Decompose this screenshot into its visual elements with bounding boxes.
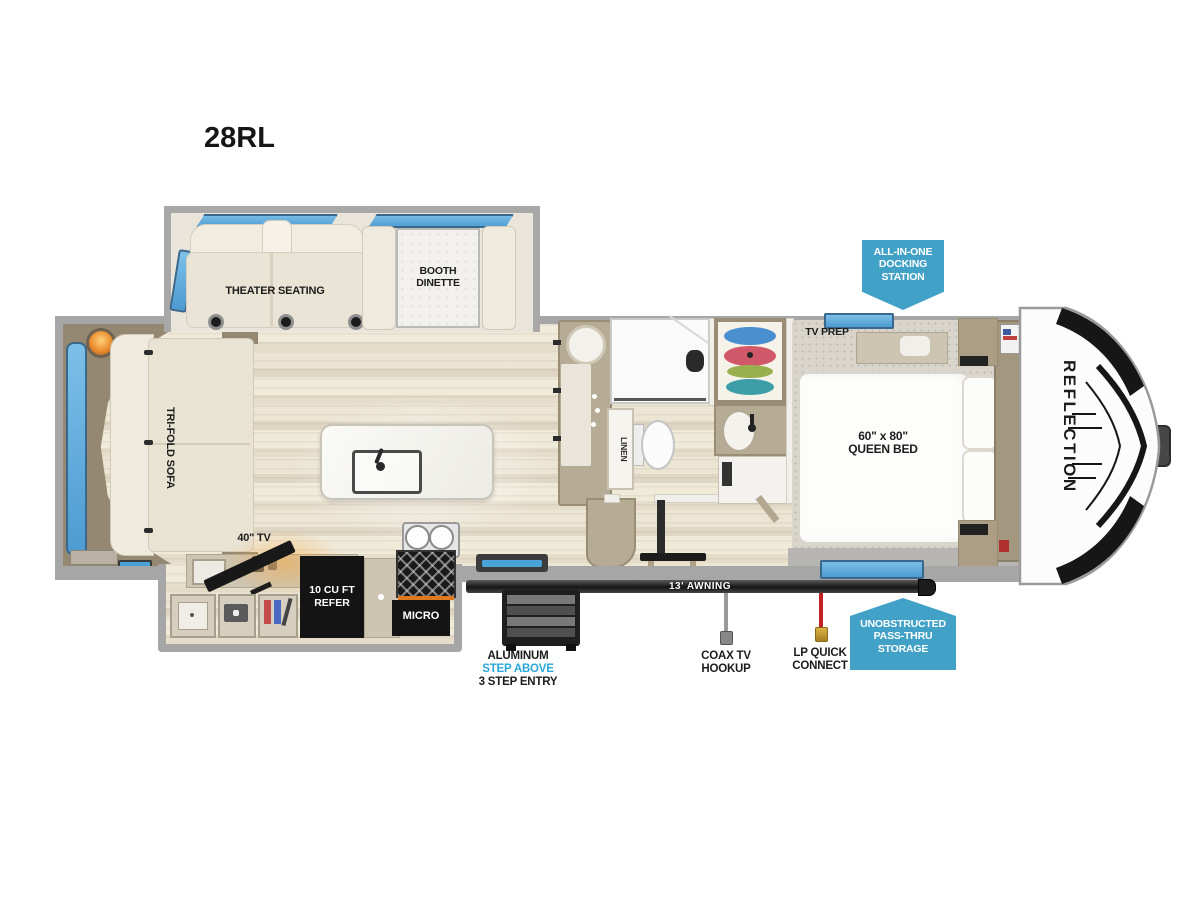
page-title: 28RL [204, 122, 275, 155]
shower-fixture-icon [686, 350, 704, 372]
bath-door [657, 500, 665, 556]
galley-handle [553, 388, 561, 393]
entry-steps-label: ALUMINUM STEP ABOVE 3 STEP ENTRY [466, 650, 570, 690]
bedding-graphic-blue [1003, 329, 1011, 335]
water-heater-blue [274, 600, 281, 624]
passthru-line3: STORAGE [850, 643, 956, 655]
theater-seating-label: THEATER SEATING [200, 285, 350, 297]
lp-hose [819, 593, 823, 629]
docking-line2: DOCKING [862, 258, 944, 270]
step-tread [507, 595, 575, 604]
dinette-line1: BOOTH [398, 266, 478, 278]
docking-line3: STATION [862, 271, 944, 283]
refer-label-line2: REFER [300, 597, 364, 610]
coax-label: COAX TV HOOKUP [688, 650, 764, 676]
booth-dinette-label: BOOTH DINETTE [398, 266, 478, 290]
vanity-faucet-base [748, 424, 756, 432]
coax-cable [724, 593, 728, 633]
step-tread [507, 617, 575, 626]
nightstand-item [960, 356, 988, 366]
front-cap: REFLECTION [1012, 302, 1172, 590]
dinette-line2: DINETTE [398, 278, 478, 290]
cabinet-knob [190, 613, 194, 617]
cupholder-icon [208, 314, 224, 330]
docking-station-callout: ALL-IN-ONE DOCKING STATION [862, 240, 944, 310]
awning-label: 13' AWNING [640, 581, 760, 592]
tv-prep-label: TV PREP [796, 327, 858, 339]
entry-door-mat-stripe [482, 560, 542, 567]
clothes-teal [726, 379, 774, 395]
refer-label-line1: 10 CU FT [300, 584, 364, 597]
galley-handle [553, 340, 561, 345]
sofa-handle [144, 528, 153, 533]
cabinet-knob [233, 610, 239, 616]
lp-connector [815, 627, 828, 642]
hanger-dot [747, 352, 753, 358]
floorplan-28rl: 28RL TRI-FOLD SOFA LINEN [0, 0, 1200, 900]
water-heater-red [264, 600, 271, 624]
queen-bed-size: 60" x 80" [808, 430, 958, 443]
cap-shell [1020, 308, 1159, 584]
toilet-bowl [641, 420, 675, 470]
galley-knob [595, 408, 600, 413]
island-sink [352, 450, 422, 494]
clothes-green [727, 365, 773, 378]
awning-end-cap [918, 579, 936, 596]
steps-line2: STEP ABOVE [466, 663, 570, 676]
galley-knob [591, 422, 596, 427]
nightstand-item [960, 524, 988, 535]
closet-label [999, 540, 1009, 552]
queen-bed [798, 372, 974, 544]
galley-handle [553, 436, 561, 441]
cabinet-knob [378, 594, 384, 600]
burner-cover [429, 525, 454, 550]
galley-lower-cabinet [586, 498, 636, 568]
pass-thru-window [820, 560, 924, 579]
galley-marble [561, 364, 591, 466]
brand-label: REFLECTION [1060, 360, 1079, 494]
dinette-bench [482, 226, 516, 330]
queen-bed-name: QUEEN BED [808, 443, 958, 456]
trifold-sofa-label: TRI-FOLD SOFA [158, 378, 176, 518]
cooktop [396, 550, 456, 598]
sofa-handle [144, 440, 153, 445]
tv-prep-item [900, 336, 930, 356]
pass-thru-callout: UNOBSTRUCTED PASS-THRU STORAGE [850, 598, 956, 670]
cupholder-icon [278, 314, 294, 330]
galley-knob [592, 394, 597, 399]
passthru-line1: UNOBSTRUCTED [850, 618, 956, 630]
pillow [962, 376, 998, 450]
bath-bottom-wall [604, 494, 620, 503]
micro-label: MICRO [392, 610, 450, 622]
linen-label: LINEN [612, 416, 628, 482]
coax-connector [720, 631, 733, 645]
rear-window [66, 342, 87, 556]
vanity-item [722, 462, 732, 486]
steps-line1: ALUMINUM [466, 650, 570, 663]
tv-label: 40" TV [222, 532, 286, 544]
microwave: MICRO [392, 600, 450, 636]
shower-door [614, 398, 706, 401]
dinette-bench [362, 226, 396, 330]
rear-badge [70, 550, 118, 565]
docking-line1: ALL-IN-ONE [862, 246, 944, 258]
queen-bed-label: 60" x 80" QUEEN BED [808, 430, 958, 457]
galley-sink [566, 325, 606, 365]
coax-line2: HOOKUP [688, 663, 764, 676]
coax-line1: COAX TV [688, 650, 764, 663]
lp-label: LP QUICK CONNECT [782, 647, 858, 673]
island-faucet-base [376, 462, 385, 471]
step-tread [507, 606, 575, 615]
bottom-wall-rear [55, 566, 165, 580]
pillow [962, 450, 998, 524]
burner-cover [405, 525, 430, 550]
sofa-handle [144, 350, 153, 355]
refrigerator: 10 CU FT REFER [300, 556, 364, 638]
lp-line1: LP QUICK [782, 647, 858, 660]
step-tread [507, 628, 575, 637]
lp-line2: CONNECT [782, 660, 858, 673]
steps-line3: 3 STEP ENTRY [466, 676, 570, 689]
grab-rail [640, 553, 706, 561]
passthru-line2: PASS-THRU [850, 630, 956, 642]
clothes-blue [724, 327, 776, 345]
